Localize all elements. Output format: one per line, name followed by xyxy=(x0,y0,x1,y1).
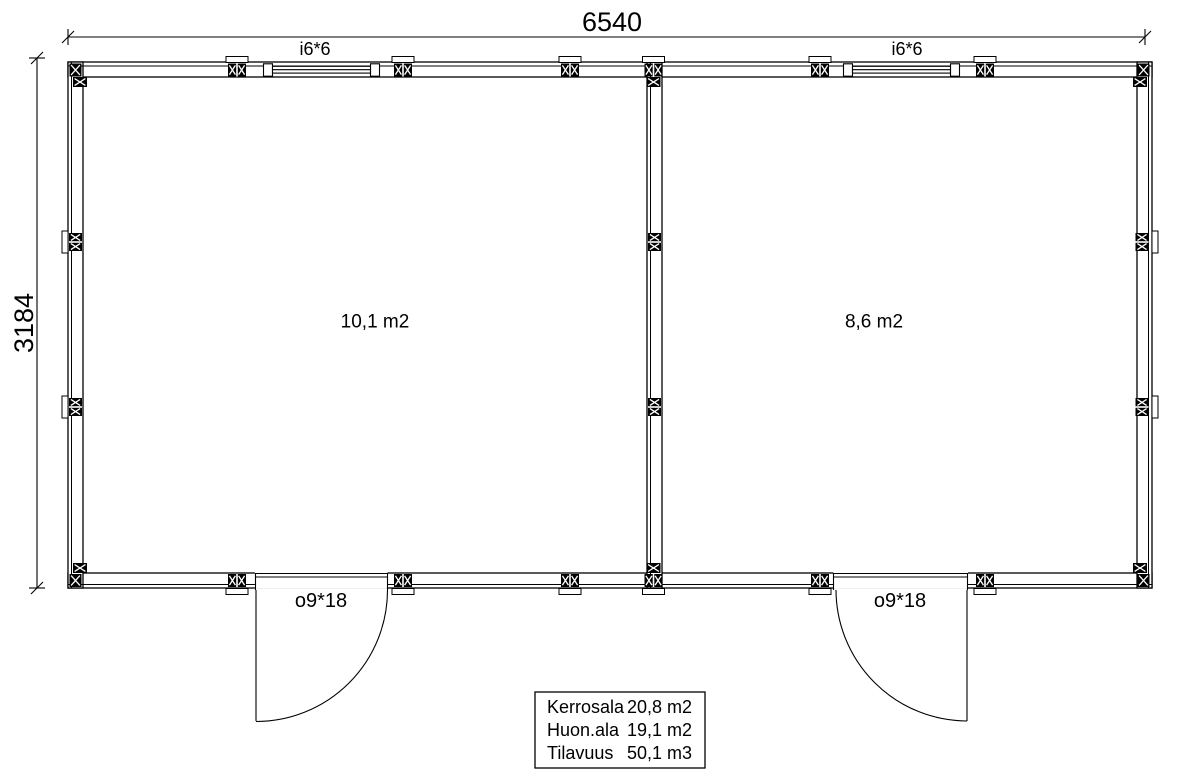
post-pair-icon xyxy=(228,574,246,587)
post-tab xyxy=(809,57,831,63)
post-icon xyxy=(1138,64,1150,77)
post-icon xyxy=(1133,77,1147,87)
wall-partition xyxy=(647,62,662,588)
wall-left xyxy=(68,62,83,588)
post-pair-icon xyxy=(228,64,246,77)
width-dimension-label: 6540 xyxy=(582,7,642,37)
post-icon xyxy=(647,77,661,87)
summary-table: Kerrosala 20,8 m2 Huon.ala 19,1 m2 Tilav… xyxy=(535,692,705,768)
post-icon xyxy=(647,563,661,573)
canvas-background xyxy=(0,0,1177,777)
post-pair-icon xyxy=(811,574,829,587)
post-pair-icon xyxy=(69,233,82,251)
summary-row-label: Tilavuus xyxy=(547,743,613,763)
room-right-area-label: 8,6 m2 xyxy=(845,312,903,333)
height-dimension-label: 3184 xyxy=(9,293,39,353)
summary-row-label: Huon.ala xyxy=(547,720,620,740)
post-pair-icon xyxy=(648,398,661,416)
post-pair-icon xyxy=(648,233,661,251)
post-tab xyxy=(226,589,248,595)
post-tab xyxy=(62,396,68,418)
post-tab xyxy=(809,589,831,595)
post-icon xyxy=(73,563,87,573)
post-pair-icon xyxy=(561,574,579,587)
post-pair-icon xyxy=(394,64,412,77)
post-pair-icon xyxy=(1136,398,1149,416)
post-tab xyxy=(226,57,248,63)
post-tab xyxy=(559,57,581,63)
post-pair-icon xyxy=(976,64,994,77)
post-tab xyxy=(392,589,414,595)
post-tab xyxy=(1152,396,1158,418)
summary-row-value: 20,8 m2 xyxy=(627,697,692,717)
post-pair-icon xyxy=(645,574,663,587)
wall-right xyxy=(1137,62,1152,588)
post-icon xyxy=(73,77,87,87)
post-tab xyxy=(974,57,996,63)
floor-plan-page: 6540 3184 xyxy=(0,0,1177,777)
post-icon xyxy=(70,64,82,77)
post-pair-icon xyxy=(561,64,579,77)
window-right-label: i6*6 xyxy=(891,39,922,59)
post-tab xyxy=(392,57,414,63)
post-icon xyxy=(70,574,82,587)
summary-row-label: Kerrosala xyxy=(547,697,625,717)
door-left-label: o9*18 xyxy=(295,590,347,612)
door-right-label: o9*18 xyxy=(874,590,926,612)
post-pair-icon xyxy=(69,398,82,416)
post-pair-icon xyxy=(811,64,829,77)
post-pair-icon xyxy=(394,574,412,587)
summary-row-value: 50,1 m3 xyxy=(627,743,692,763)
window-left-label: i6*6 xyxy=(299,39,330,59)
post-pair-icon xyxy=(1136,233,1149,251)
post-icon xyxy=(1133,563,1147,573)
post-icon xyxy=(1138,574,1150,587)
post-tab xyxy=(559,589,581,595)
summary-row-value: 19,1 m2 xyxy=(627,720,692,740)
post-pair-icon xyxy=(976,574,994,587)
post-tab xyxy=(62,231,68,253)
post-tab xyxy=(1152,231,1158,253)
room-left-area-label: 10,1 m2 xyxy=(341,312,410,333)
post-tab xyxy=(643,589,665,595)
post-tab xyxy=(643,57,665,63)
post-tab xyxy=(974,589,996,595)
post-pair-icon xyxy=(645,64,663,77)
floor-plan-drawing: 6540 3184 xyxy=(0,0,1177,777)
